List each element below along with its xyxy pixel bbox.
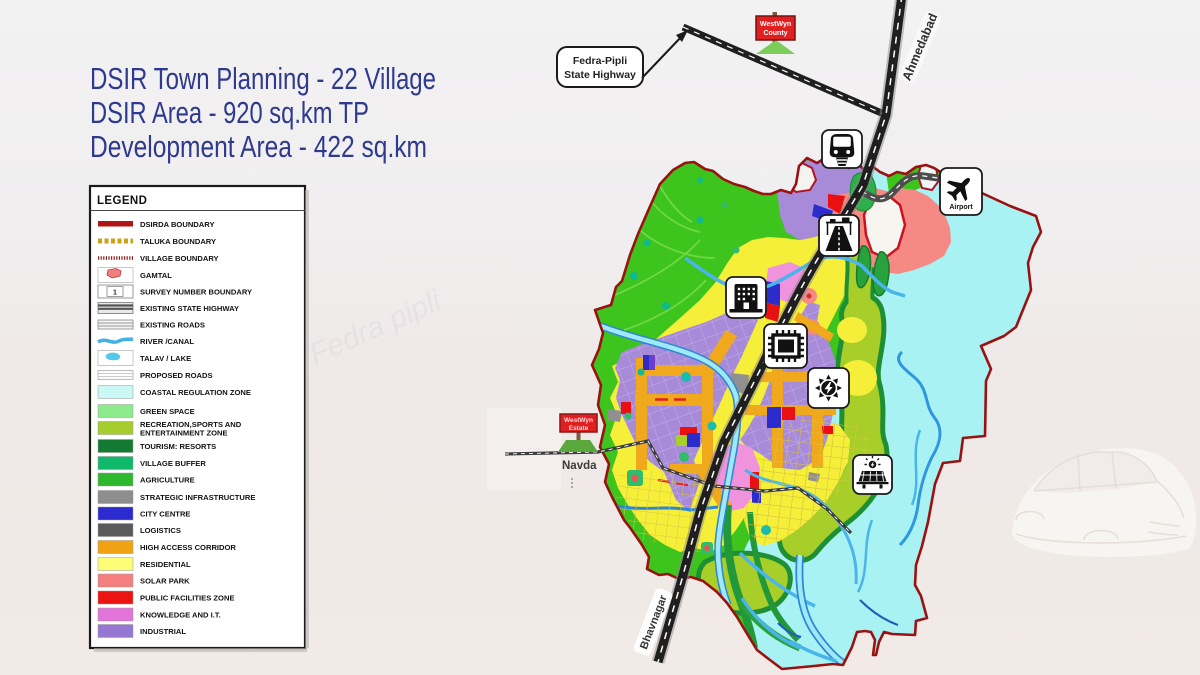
svg-text:LEGEND: LEGEND [97, 195, 147, 207]
svg-text:Navda: Navda [562, 460, 597, 472]
svg-text:HIGH ACCESS CORRIDOR: HIGH ACCESS CORRIDOR [140, 543, 236, 552]
svg-text:WestWyn: WestWyn [760, 21, 791, 28]
svg-text:ENTERTAINMENT ZONE: ENTERTAINMENT ZONE [140, 429, 228, 438]
svg-text:DSIR Area - 920 sq.km TP: DSIR Area - 920 sq.km TP [90, 95, 369, 130]
svg-text:1: 1 [113, 288, 117, 297]
svg-text:CITY CENTRE: CITY CENTRE [140, 510, 191, 519]
svg-text:TALAV / LAKE: TALAV / LAKE [140, 354, 191, 363]
svg-text:RESIDENTIAL: RESIDENTIAL [140, 560, 191, 569]
svg-text:INDUSTRIAL: INDUSTRIAL [140, 627, 186, 636]
svg-text:DSIRDA BOUNDARY: DSIRDA BOUNDARY [140, 220, 215, 229]
svg-text:COASTAL REGULATION ZONE: COASTAL REGULATION ZONE [140, 388, 251, 397]
svg-text:Fedra-Pipli: Fedra-Pipli [573, 55, 627, 67]
svg-text:VILLAGE BUFFER: VILLAGE BUFFER [140, 459, 206, 468]
svg-text:VILLAGE BOUNDARY: VILLAGE BOUNDARY [140, 254, 219, 263]
svg-text:EXISTING ROADS: EXISTING ROADS [140, 321, 205, 330]
svg-text:State Highway: State Highway [564, 69, 636, 81]
svg-text:RIVER /CANAL: RIVER /CANAL [140, 337, 194, 346]
svg-text:EXISTING STATE HIGHWAY: EXISTING STATE HIGHWAY [140, 304, 239, 313]
svg-text:SOLAR PARK: SOLAR PARK [140, 577, 190, 586]
svg-text:WestWyn: WestWyn [564, 417, 593, 424]
svg-text:DSIR Town Planning - 22 Villag: DSIR Town Planning - 22 Village [90, 61, 436, 96]
svg-text:PUBLIC FACILITIES ZONE: PUBLIC FACILITIES ZONE [140, 594, 235, 603]
svg-text:AGRICULTURE: AGRICULTURE [140, 476, 195, 485]
svg-text:Development Area - 422 sq.km: Development Area - 422 sq.km [90, 129, 427, 164]
svg-text:KNOWLEDGE AND I.T.: KNOWLEDGE AND I.T. [140, 611, 221, 620]
svg-text:Estate: Estate [569, 425, 589, 432]
svg-text:LOGISTICS: LOGISTICS [140, 526, 181, 535]
svg-text:GREEN SPACE: GREEN SPACE [140, 407, 195, 416]
svg-text:County: County [763, 30, 787, 37]
svg-text:TOURISM: RESORTS: TOURISM: RESORTS [140, 442, 216, 451]
svg-text:SURVEY NUMBER BOUNDARY: SURVEY NUMBER BOUNDARY [140, 288, 252, 297]
svg-text:TALUKA BOUNDARY: TALUKA BOUNDARY [140, 237, 216, 246]
svg-text:PROPOSED ROADS: PROPOSED ROADS [140, 371, 213, 380]
svg-text:Airport: Airport [949, 204, 973, 211]
svg-text:GAMTAL: GAMTAL [140, 271, 172, 280]
svg-text:STRATEGIC INFRASTRUCTURE: STRATEGIC INFRASTRUCTURE [140, 493, 255, 502]
